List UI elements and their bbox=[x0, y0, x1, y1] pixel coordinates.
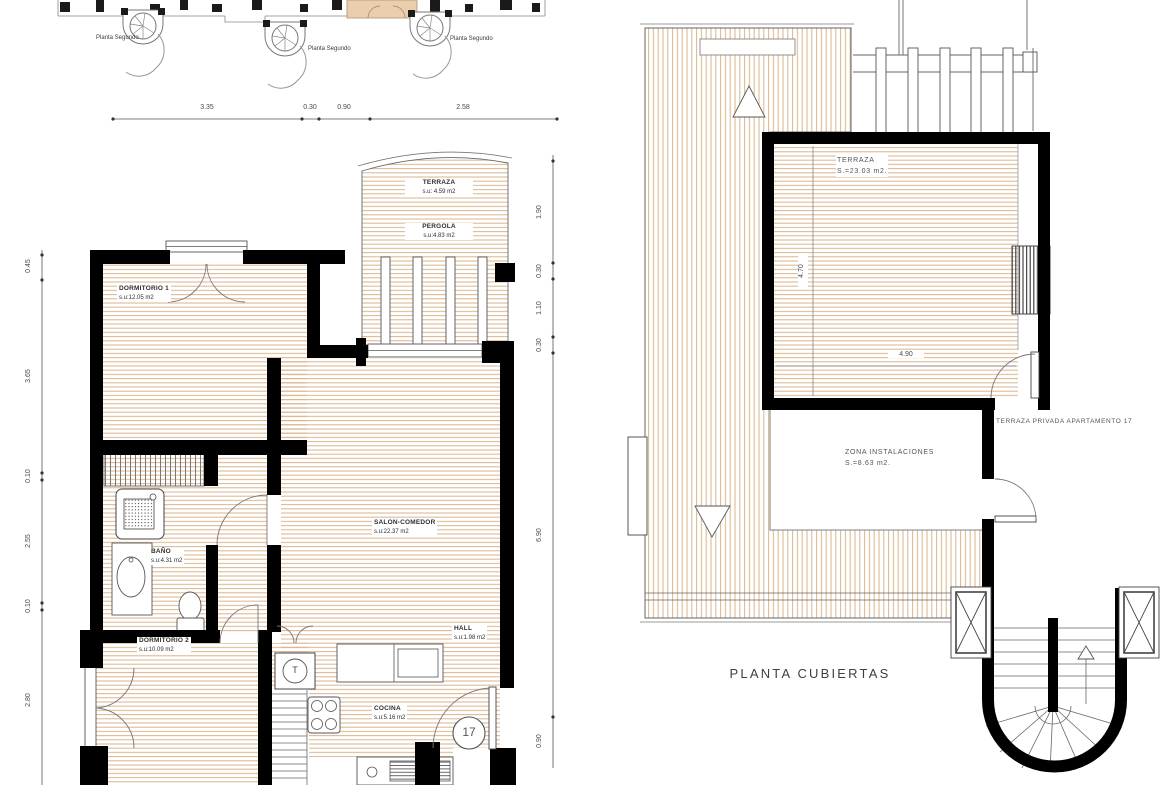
room-area: S.=8.63 m2. bbox=[845, 458, 934, 469]
room-area: s.u:12.05 m2 bbox=[119, 294, 169, 302]
highlighted-unit bbox=[347, 0, 417, 18]
room-name: TERRAZA bbox=[407, 179, 471, 188]
roof-plan-title: PLANTA CUBIERTAS bbox=[722, 666, 898, 681]
room-area: s.u:10.09 m2 bbox=[139, 646, 189, 654]
dim-label: 4.70 bbox=[798, 253, 808, 289]
key-plan-floor-label: Planta Segundo bbox=[308, 46, 351, 52]
dim-label: 0.30 bbox=[536, 328, 546, 362]
vent-shaft-left bbox=[951, 587, 991, 658]
room-area: s.u:22.37 m2 bbox=[374, 528, 435, 536]
room-area: S.=23.03 m2. bbox=[837, 166, 887, 177]
room-name: DORMITORIO 2 bbox=[139, 637, 189, 646]
dim-label: 2.55 bbox=[25, 524, 35, 558]
dim-label: 3.65 bbox=[25, 359, 35, 393]
room-area: s.u:5.16 m2 bbox=[374, 714, 405, 722]
private-terrace-note: TERRAZA PRIVADA APARTAMENTO 17 bbox=[996, 418, 1132, 425]
apartment-plan-drawing bbox=[40, 152, 554, 785]
room-name: PERGOLA bbox=[407, 223, 471, 232]
wardrobe bbox=[104, 453, 204, 486]
dim-label: 3.35 bbox=[190, 104, 224, 111]
dim-label: 0.10 bbox=[25, 459, 35, 493]
room-name: TERRAZA bbox=[837, 155, 887, 166]
room-area: s.u: 4.59 m2 bbox=[407, 188, 471, 196]
apartment-number: 17 bbox=[456, 725, 482, 739]
room-label-cocina: COCINA s.u:5.16 m2 bbox=[372, 705, 407, 722]
roof-plan-drawing bbox=[628, 0, 1159, 773]
room-name: DORMITORIO 1 bbox=[119, 285, 169, 294]
dim-label: 1.10 bbox=[536, 291, 546, 325]
roof-terraza-label: TERRAZA S.=23.03 m2. bbox=[836, 155, 888, 177]
key-plan-floor-label: Planta Segundo bbox=[450, 36, 493, 42]
plan-linework bbox=[0, 0, 1170, 785]
floor-plan-sheet: Planta Segundo Planta Segundo Planta Seg… bbox=[0, 0, 1170, 785]
room-label-bano: BAÑO s.u:4.31 m2 bbox=[149, 548, 184, 565]
zona-instalaciones-label: ZONA INSTALACIONES S.=8.63 m2. bbox=[845, 447, 934, 469]
key-plan-floor-label: Planta Segundo bbox=[96, 35, 139, 41]
dim-label: 0.45 bbox=[25, 249, 35, 283]
dim-label: 4.90 bbox=[888, 351, 924, 358]
right-dimension-chain bbox=[551, 155, 554, 768]
room-label-terraza: TERRAZA s.u: 4.59 m2 bbox=[405, 179, 473, 196]
terrace-door-leaf bbox=[1031, 352, 1039, 398]
room-label-dormitorio2: DORMITORIO 2 s.u:10.09 m2 bbox=[137, 637, 191, 654]
room-area: s.u:4.83 m2 bbox=[407, 232, 471, 240]
room-name: BAÑO bbox=[151, 548, 182, 557]
key-plan-drawing bbox=[58, 0, 545, 88]
vent-shaft-right bbox=[1119, 587, 1159, 658]
stair-direction-arrow bbox=[1078, 646, 1094, 659]
room-area: s.u:1.98 m2 bbox=[454, 634, 485, 642]
dim-label: 0.90 bbox=[327, 104, 361, 111]
entry-door-leaf bbox=[489, 687, 496, 749]
room-label-dormitorio1: DORMITORIO 1 s.u:12.05 m2 bbox=[117, 285, 171, 302]
toilet bbox=[179, 592, 201, 620]
room-label-hall: HALL s.u:1.98 m2 bbox=[452, 625, 487, 642]
room-label-salon-comedor: SALON-COMEDOR s.u:22.37 m2 bbox=[372, 519, 437, 536]
dim-label: 0.30 bbox=[293, 104, 327, 111]
room-label-pergola: PERGOLA s.u:4.83 m2 bbox=[405, 223, 473, 240]
left-dimension-chain bbox=[40, 250, 43, 785]
dim-label: 6.90 bbox=[536, 518, 546, 552]
dim-label: 0.90 bbox=[536, 724, 546, 758]
roof-pergola-posts bbox=[853, 0, 1037, 133]
top-dimension-chain bbox=[111, 117, 558, 120]
zona-door-leaf bbox=[995, 516, 1036, 522]
dim-label: 1.90 bbox=[536, 195, 546, 229]
room-area: s.u:4.31 m2 bbox=[151, 557, 182, 565]
washbasin bbox=[117, 557, 145, 597]
room-name: SALON-COMEDOR bbox=[374, 519, 435, 528]
dim-label: 0.10 bbox=[25, 589, 35, 623]
dim-label: 2.58 bbox=[446, 104, 480, 111]
dormitorio2-window bbox=[85, 666, 96, 750]
chimney bbox=[628, 437, 647, 535]
dim-label: 2.80 bbox=[25, 683, 35, 717]
room-name: ZONA INSTALACIONES bbox=[845, 447, 934, 458]
room-name: HALL bbox=[454, 625, 485, 634]
room-name: COCINA bbox=[374, 705, 405, 714]
lift-symbol: T bbox=[288, 665, 302, 675]
dim-label: 0.30 bbox=[536, 254, 546, 288]
